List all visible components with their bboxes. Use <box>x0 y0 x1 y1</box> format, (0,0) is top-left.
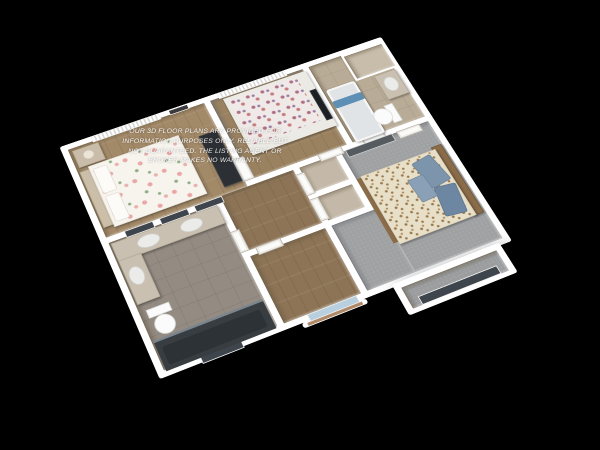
watermark-line-4: BROKER MAKES NO WARRANTY. <box>103 156 307 166</box>
floorplan-scene <box>67 13 507 398</box>
watermark-line-1: OUR 3D FLOOR PLANS ARE PROVIDED FOR <box>103 127 307 137</box>
watermark-line-2: INFORMATION PURPOSES ONLY. RELIABLE BUT <box>103 137 307 147</box>
black-background: OUR 3D FLOOR PLANS ARE PROVIDED FOR INFO… <box>0 0 600 450</box>
watermark-disclaimer: OUR 3D FLOOR PLANS ARE PROVIDED FOR INFO… <box>103 127 307 166</box>
watermark-line-3: NOT GUARANTEED. THE LISTING AGENT OR <box>103 147 307 157</box>
floorplan-3d-render <box>60 37 530 410</box>
